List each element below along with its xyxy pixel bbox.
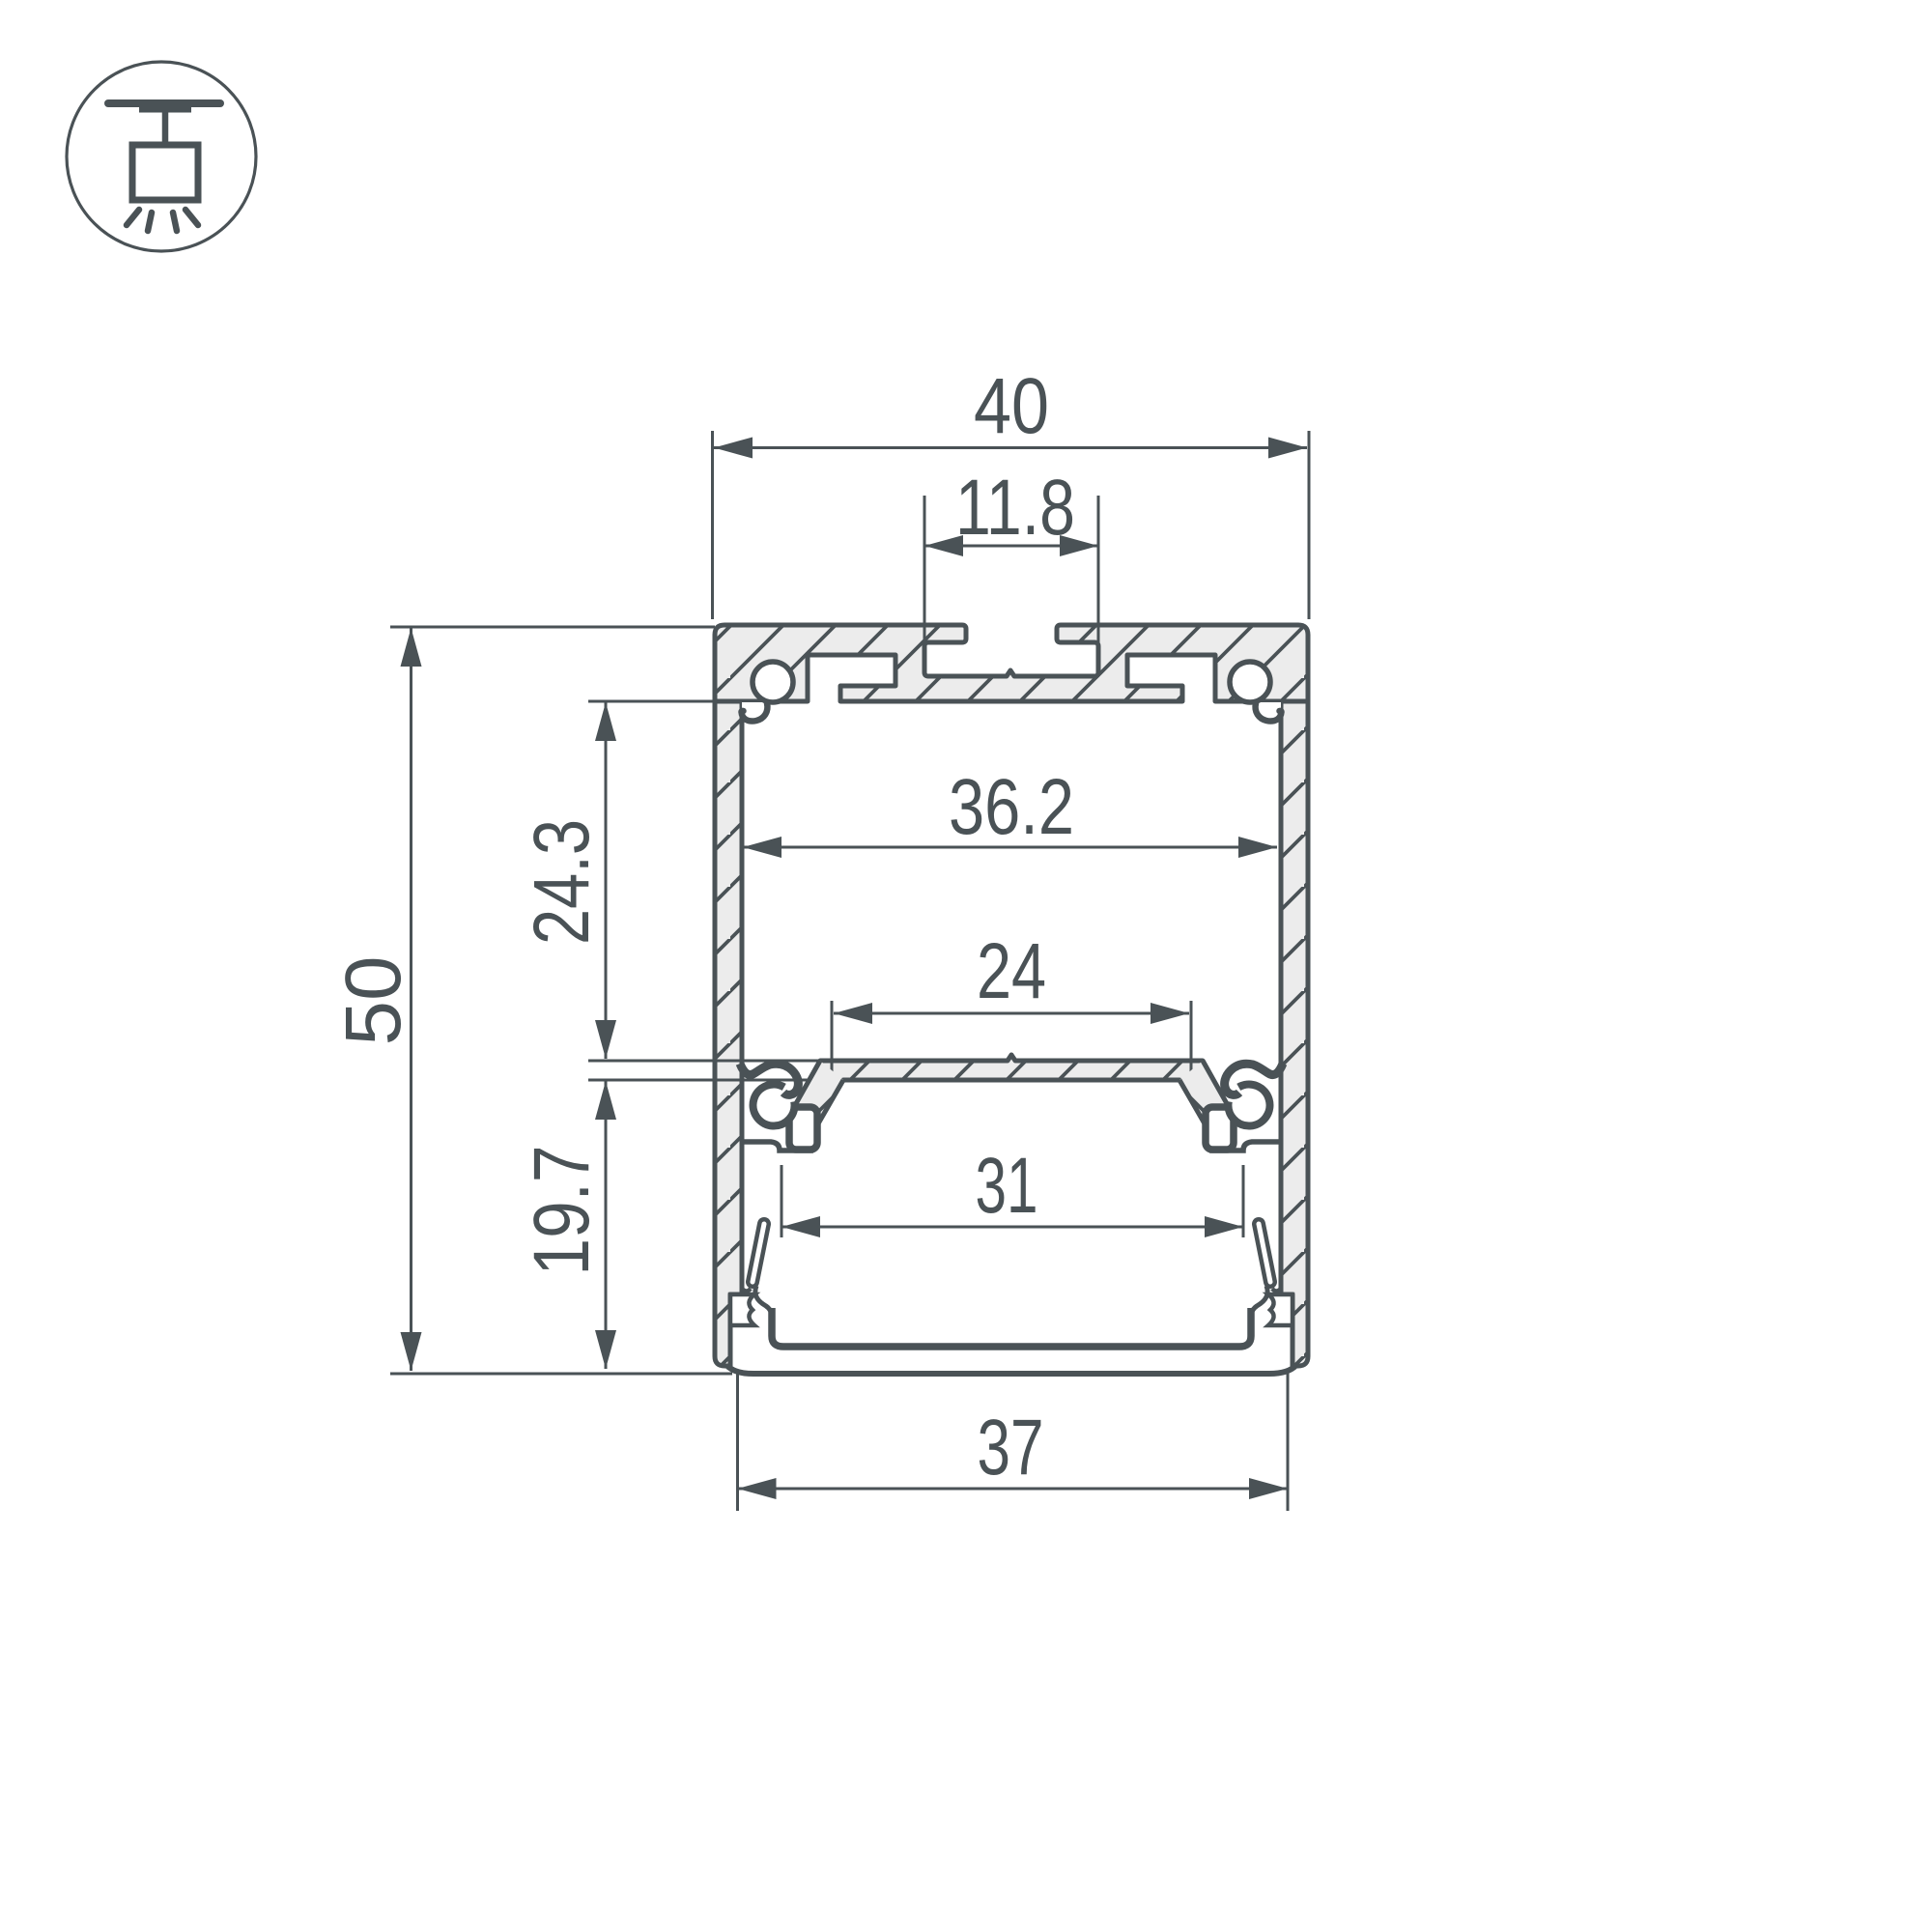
svg-text:40: 40	[974, 362, 1049, 450]
svg-text:50: 50	[329, 956, 417, 1046]
svg-text:19.7: 19.7	[518, 1146, 606, 1276]
svg-text:24.3: 24.3	[518, 819, 606, 945]
svg-text:11.8: 11.8	[955, 464, 1075, 552]
svg-text:31: 31	[976, 1142, 1038, 1230]
svg-text:37: 37	[978, 1404, 1044, 1492]
svg-text:24: 24	[977, 927, 1046, 1015]
svg-text:36.2: 36.2	[949, 763, 1074, 851]
